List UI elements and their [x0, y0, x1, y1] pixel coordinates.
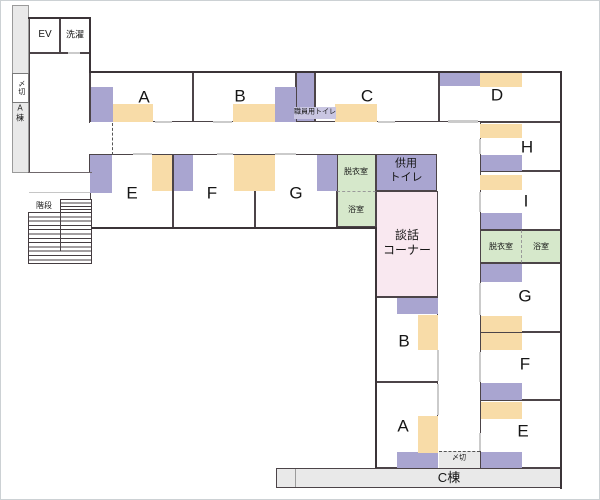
wall-central-left	[375, 227, 377, 468]
label-room-f: F	[207, 182, 217, 203]
label-stairs: 階段	[36, 201, 52, 211]
label-room-c: C	[361, 85, 373, 106]
c-wing-corridor	[276, 468, 562, 488]
label-room-h: H	[521, 136, 533, 157]
furniture-e-orange	[152, 155, 172, 191]
door-room-c	[378, 121, 395, 123]
door-room-i	[479, 192, 481, 212]
furniture-f-orange	[234, 155, 255, 191]
label-room-g-right: G	[518, 285, 531, 306]
furniture-e-purple	[90, 155, 112, 193]
opening-hall-corridor	[88, 123, 91, 154]
door-room-g-right	[479, 283, 481, 315]
label-room-f-right: F	[520, 353, 530, 374]
label-ev: EV	[38, 29, 51, 42]
furniture-e-right-orange	[481, 402, 522, 419]
furniture-b-orange	[233, 104, 275, 122]
label-room-b: B	[234, 85, 245, 106]
label-room-b-central: B	[398, 330, 409, 351]
label-laundry: 洗濯	[66, 29, 84, 40]
label-room-i: I	[524, 190, 529, 211]
label-room-d: D	[491, 84, 503, 105]
label-c-wing: C棟	[438, 470, 460, 486]
hall	[29, 53, 90, 173]
label-shimekiri-left: 〆切	[16, 80, 25, 96]
door-room-a	[155, 121, 172, 123]
wall-right	[560, 71, 562, 489]
furniture-f-purple	[174, 155, 193, 191]
stairs-upper-flight	[60, 199, 92, 213]
furniture-b-central-purple	[397, 298, 438, 314]
door-room-f-right	[479, 352, 481, 382]
door-room-g	[275, 153, 296, 155]
furniture-f-right-orange	[481, 333, 522, 350]
label-lounge: 談話 コーナー	[383, 228, 431, 258]
door-room-f	[217, 153, 233, 155]
furniture-c-orange	[335, 104, 377, 122]
door-room-b	[213, 121, 232, 123]
door-laundry	[68, 52, 80, 54]
furniture-a-central-purple	[397, 452, 438, 468]
furniture-e-right-purple	[481, 452, 522, 468]
label-room-g: G	[289, 182, 302, 203]
c-strip-divider	[295, 469, 296, 487]
furniture-g-purple	[317, 155, 337, 191]
label-shimekiri-bottom: 〆切	[452, 455, 466, 464]
wall-top	[90, 71, 562, 73]
furniture-d-purple	[440, 73, 480, 86]
label-shared-toilet: 供用 トイレ	[390, 157, 423, 185]
furniture-b-central-orange	[418, 315, 438, 350]
furniture-i-purple	[481, 213, 522, 229]
label-room-a-central: A	[397, 415, 408, 436]
floorplan: EV洗濯〆切A棟ABCD職員用トイレEFG脱衣室浴室供用 トイレ談話 コーナーH…	[0, 0, 600, 500]
label-room-e: E	[126, 182, 137, 203]
wall-ev-top	[28, 17, 91, 19]
label-dressing-right: 脱衣室	[489, 242, 513, 252]
label-room-e-right: E	[517, 420, 528, 441]
furniture-a-central-orange	[418, 416, 438, 453]
furniture-g-right-purple	[481, 264, 522, 282]
furniture-g-orange	[255, 155, 275, 191]
furniture-a-purple	[91, 87, 113, 122]
label-room-a: A	[138, 86, 149, 107]
door-room-e	[133, 153, 152, 155]
furniture-h-orange	[480, 124, 522, 138]
opening-corridor-d	[448, 120, 478, 123]
label-bath-top: 浴室	[348, 205, 364, 215]
door-room-e-right	[479, 433, 481, 451]
label-dressing-top: 脱衣室	[344, 167, 368, 177]
furniture-h-purple	[481, 155, 522, 171]
wall-ev-right	[89, 17, 91, 73]
furniture-g-right-orange	[481, 316, 522, 332]
furniture-f-right-purple	[481, 383, 522, 400]
label-bath-right: 浴室	[533, 242, 549, 252]
door-room-b-central	[437, 350, 439, 381]
corridor-dashed-line	[112, 123, 113, 155]
furniture-b-purple	[275, 87, 296, 122]
label-staff-toilet: 職員用トイレ	[294, 109, 336, 118]
door-room-a-central	[437, 384, 439, 415]
stair-landing-line	[29, 192, 90, 193]
furniture-i-orange	[480, 175, 522, 190]
door-room-h	[479, 139, 481, 154]
wall-hall-bottom	[28, 172, 92, 173]
wall-row2-bottom	[91, 227, 377, 229]
label-a-wing: A棟	[15, 104, 25, 123]
stairs-divider	[60, 212, 61, 251]
